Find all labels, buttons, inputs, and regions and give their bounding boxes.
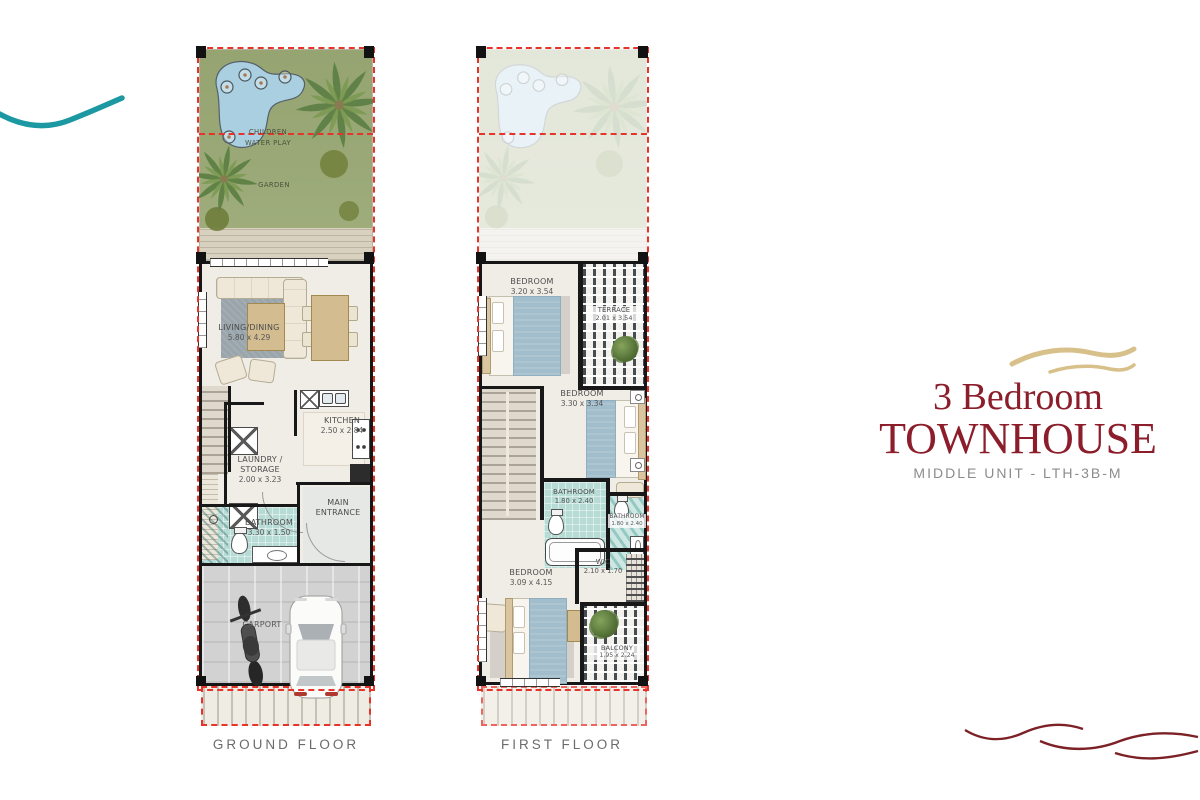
corner-mark: [364, 46, 374, 58]
room-label-terrace: TERRACE 2.01 x 3.54: [586, 306, 642, 323]
toilet-icon: [548, 514, 564, 535]
motorcycle-icon: [228, 594, 272, 688]
car-icon: [284, 594, 348, 700]
wall: [296, 482, 373, 485]
armchair: [248, 358, 277, 383]
room-dims: 3.09 x 4.15: [492, 578, 570, 588]
room-dims: 2.00 x 3.23: [226, 475, 294, 485]
wall: [578, 264, 583, 386]
bench: [567, 610, 581, 642]
closet-shelving: [626, 554, 644, 602]
room-name: BATHROOM: [238, 518, 300, 528]
shrub: [205, 207, 229, 231]
wall: [580, 602, 584, 682]
plant-icon: [612, 336, 638, 362]
unit-code-subtitle: MIDDLE UNIT - LTH-3B-M: [858, 465, 1178, 481]
counter-unit: [350, 464, 370, 482]
room-label-bedroom-1: BEDROOM 3.20 x 3.54: [496, 277, 568, 297]
water-play-label: CHILDREN WATER PLAY: [224, 127, 312, 148]
room-dims: 3.20 x 3.54: [496, 287, 568, 297]
garden-graphic: [199, 49, 373, 261]
corner-mark: [476, 46, 486, 58]
room-dims: 3.30 x 3.34: [550, 399, 614, 409]
room-label-main-entrance: MAIN ENTRANCE: [306, 498, 370, 518]
room-dims: 5.80 x 4.29: [206, 333, 292, 343]
plant-icon: [590, 610, 618, 638]
dining-table: [311, 295, 349, 361]
nightstand: [630, 390, 645, 404]
room-label-wic: WIC 2.10 x 1.70: [580, 558, 626, 576]
room-dims: 1.80 x 2.40: [543, 497, 605, 506]
pillow: [513, 606, 525, 628]
room-name: KITCHEN: [312, 416, 372, 426]
bed-headboard: [505, 598, 513, 682]
wall: [224, 402, 264, 405]
bed-blanket: [586, 400, 616, 478]
room-dims: 1.80 x 2.40: [608, 521, 646, 528]
room-label-living-dining: LIVING/DINING 5.80 x 4.29: [206, 323, 292, 343]
palm-tree-icon: [199, 138, 265, 221]
terrace-deck: [583, 264, 644, 386]
room-name: MAIN ENTRANCE: [306, 498, 370, 518]
corner-mark: [196, 46, 206, 58]
unit-type-title-line1: 3 Bedroom: [858, 378, 1178, 417]
window: [210, 258, 328, 267]
staircase: [482, 388, 536, 520]
room-dims: 3.30 x 1.50: [238, 528, 300, 538]
fade-overlay: [479, 49, 647, 261]
branding-block: 3 Bedroom TOWNHOUSE MIDDLE UNIT - LTH-3B…: [858, 342, 1178, 481]
wall: [199, 504, 299, 507]
room-name: BEDROOM: [492, 568, 570, 578]
room-label-bathroom-2: BATHROOM 1.80 x 2.40: [608, 514, 646, 528]
appliance-icon: [300, 390, 319, 409]
room-name: CARPORT: [232, 620, 292, 630]
wall: [224, 402, 227, 506]
vanity-sink: [630, 536, 644, 555]
pillow: [492, 302, 504, 324]
room-name: LAUNDRY / STORAGE: [226, 455, 294, 475]
wall: [580, 602, 644, 606]
corner-mark: [196, 252, 206, 264]
nightstand: [630, 458, 645, 472]
room-label-kitchen: KITCHEN 2.50 x 2.84: [312, 416, 372, 436]
wall: [610, 492, 644, 496]
corner-mark: [638, 46, 648, 58]
room-name: BEDROOM: [496, 277, 568, 287]
room-name: BEDROOM: [550, 389, 614, 399]
wall: [482, 386, 542, 389]
ground-floor-caption: GROUND FLOOR: [196, 737, 376, 752]
room-name: WIC: [580, 558, 626, 567]
corner-mark: [364, 676, 374, 686]
room-name: TERRACE: [586, 306, 642, 314]
room-label-bathroom-g: BATHROOM 3.30 x 1.50: [238, 518, 300, 538]
corner-mark: [476, 676, 486, 686]
window: [478, 296, 487, 356]
corner-mark: [476, 252, 486, 264]
room-label-bedroom-2: BEDROOM 3.30 x 3.34: [550, 389, 614, 409]
room-dims: 1.95 x 2.24: [594, 652, 640, 660]
room-dims: 2.10 x 1.70: [580, 567, 626, 576]
room-label-bathroom-1: BATHROOM 1.80 x 2.40: [543, 488, 605, 506]
shrub: [320, 150, 348, 178]
pillow: [624, 406, 636, 428]
corner-mark: [638, 252, 648, 264]
shower: [202, 507, 228, 563]
teal-wave-icon: [0, 88, 130, 136]
setback-dashed-line: [479, 133, 647, 135]
pillow: [624, 432, 636, 454]
window: [500, 678, 560, 687]
corner-mark: [196, 676, 206, 686]
vanity-sink: [252, 546, 300, 563]
shrub: [339, 201, 359, 221]
wall: [575, 548, 644, 552]
room-label-laundry-storage: LAUNDRY / STORAGE 2.00 x 3.23: [226, 455, 294, 485]
room-label-balcony: BALCONY 1.95 x 2.24: [594, 644, 640, 660]
driveway: [481, 686, 647, 726]
unit-type-title-line2: TOWNHOUSE: [858, 417, 1178, 460]
brochure-page: CHILDREN WATER PLAY GARDEN LIVING/DINING…: [0, 0, 1200, 800]
room-label-bedroom-3: BEDROOM 3.09 x 4.15: [492, 568, 570, 588]
wall: [540, 478, 610, 482]
wall: [294, 390, 297, 436]
bed-blanket: [513, 296, 561, 376]
red-waves-icon: [955, 705, 1200, 765]
wall: [575, 548, 579, 604]
first-floor-caption: FIRST FLOOR: [476, 737, 648, 752]
room-label-carport: CARPORT: [232, 620, 292, 630]
room-name: BATHROOM: [608, 514, 646, 521]
stair-railing: [506, 392, 509, 516]
corner-mark: [364, 252, 374, 264]
wall: [199, 563, 373, 566]
room-name: BALCONY: [594, 644, 640, 652]
room-dims: 2.50 x 2.84: [312, 426, 372, 436]
garden-label: GARDEN: [234, 180, 314, 191]
pillow: [513, 632, 525, 654]
window: [478, 598, 487, 662]
gold-wave-logo-icon: [1008, 342, 1138, 378]
room-name: BATHROOM: [543, 488, 605, 497]
kitchen-sink: [319, 390, 349, 407]
washer-icon: [229, 427, 258, 455]
pillow: [492, 330, 504, 352]
room-name: LIVING/DINING: [206, 323, 292, 333]
corner-mark: [638, 676, 648, 686]
room-dims: 2.01 x 3.54: [586, 314, 642, 322]
bed-blanket: [529, 598, 567, 684]
